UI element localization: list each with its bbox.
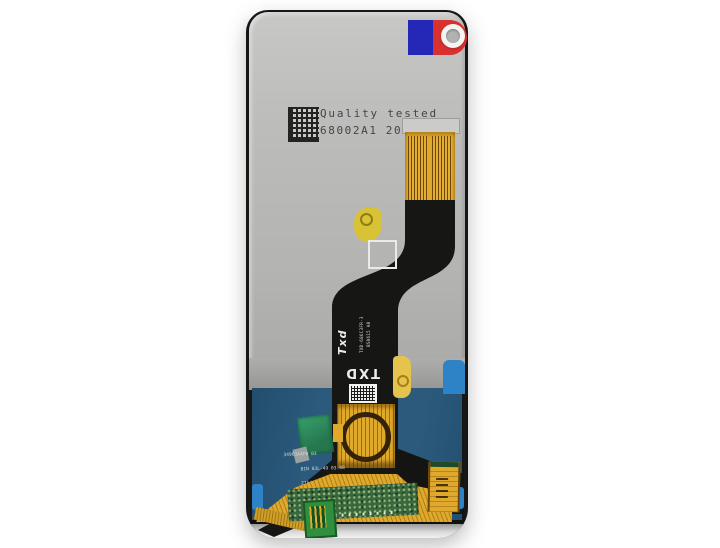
phone-screen-assembly: Quality tested 68002A1 2020/11/1 Txd TXD… <box>246 10 468 538</box>
coil-ring <box>341 412 391 462</box>
flex-gold-tab <box>393 356 411 398</box>
print-line: BIN 03L-49 03.08 <box>301 466 345 473</box>
connector-pins <box>309 506 326 529</box>
print-line: 34963A4FB 03 <box>283 452 316 458</box>
aux-flex-markings <box>436 478 448 498</box>
product-photo: Quality tested 68002A1 2020/11/1 Txd TXD… <box>0 0 720 548</box>
alignment-square <box>368 240 397 269</box>
board-connector <box>303 499 338 538</box>
qr-modules <box>351 386 375 401</box>
flex-qr-label <box>349 384 377 403</box>
aux-flex-strip <box>428 462 461 513</box>
aux-flex-cap <box>430 462 458 467</box>
flex-part-number: TXD-686C3FR-3 <box>359 316 364 353</box>
txd-mark-inverted: TXD <box>346 362 380 382</box>
tab-hole <box>397 375 409 387</box>
coil-ring-gap <box>333 424 343 442</box>
film-pull-tab <box>443 360 465 394</box>
txd-logo: Txd <box>336 330 349 355</box>
flex-batch-code: BS0615 A0 <box>366 322 371 347</box>
tab-hole <box>360 213 373 226</box>
